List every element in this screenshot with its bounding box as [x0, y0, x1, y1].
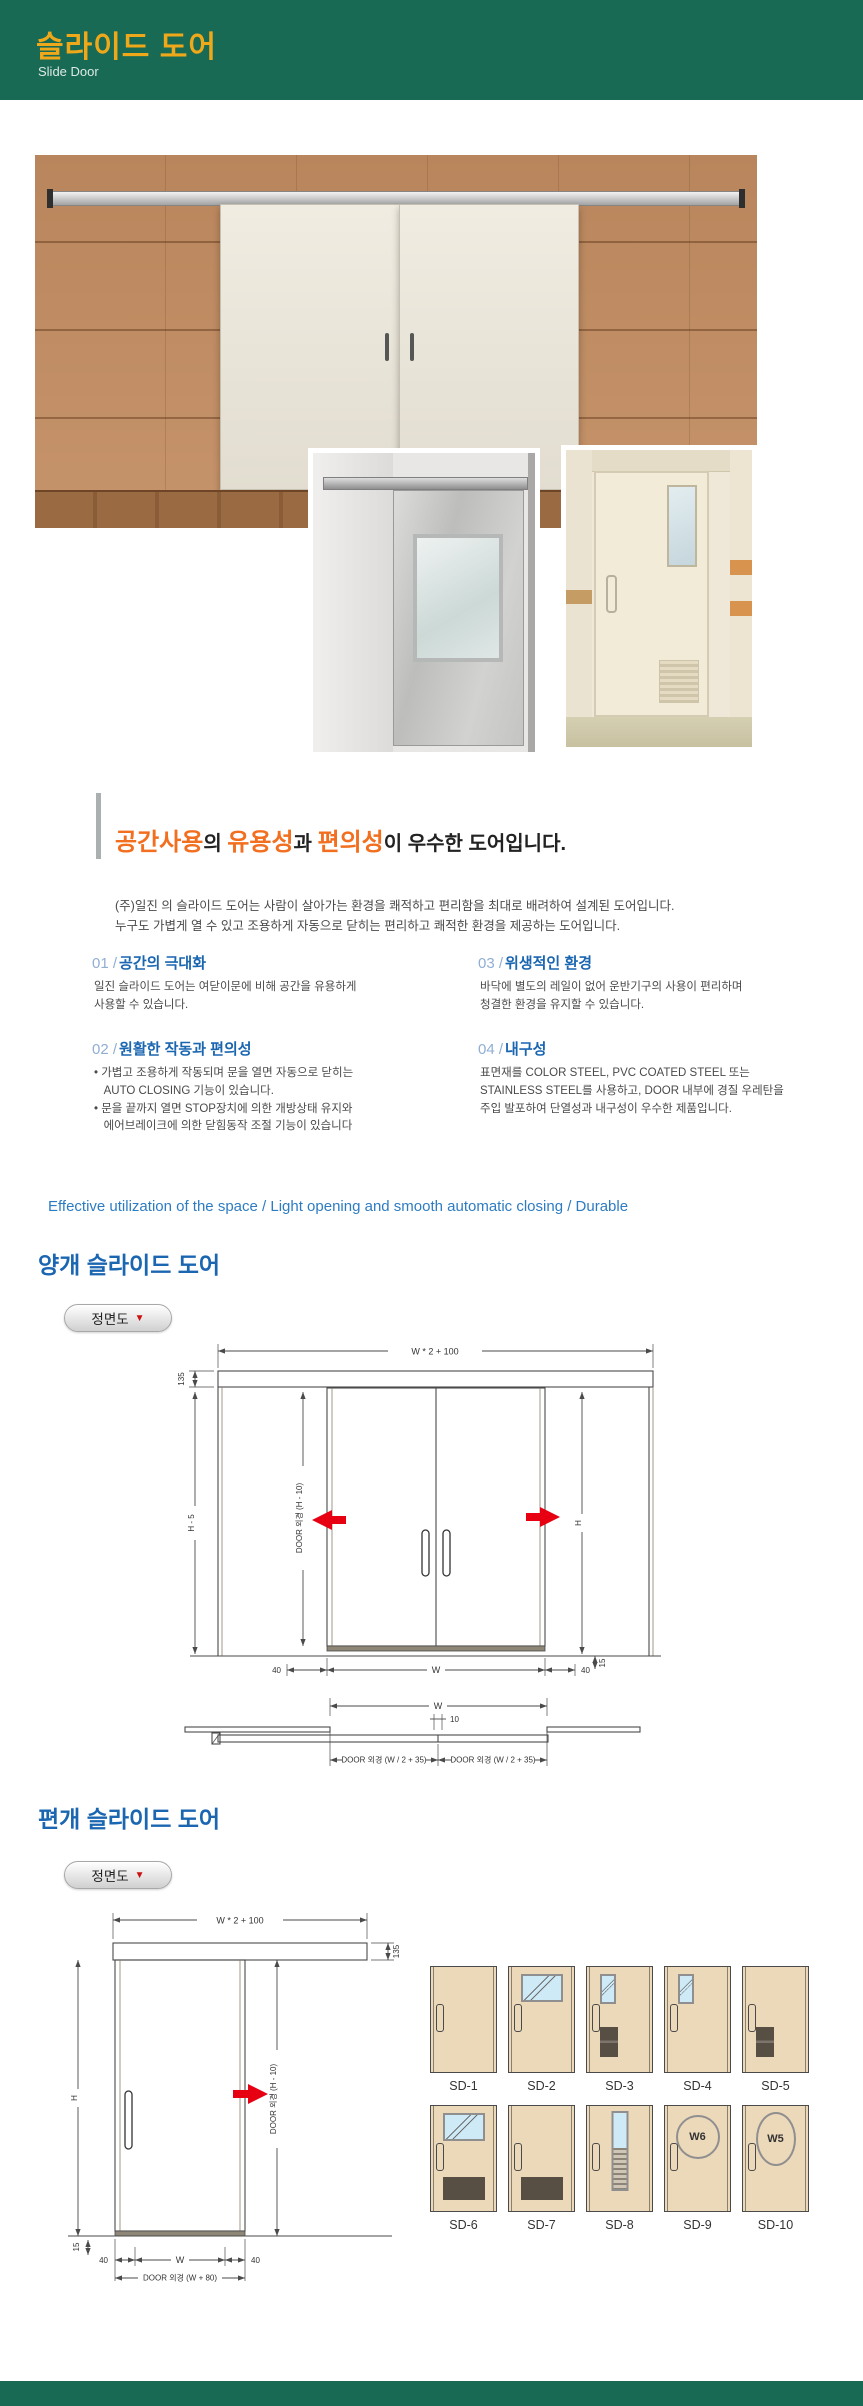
intro-heading: 공간사용의 유용성과 편의성이 우수한 도어입니다. [115, 822, 566, 857]
feature-title: 원활한 작동과 편의성 [119, 1041, 252, 1058]
door-preview-window-vent-bottom [430, 2105, 497, 2212]
page-header: 슬라이드 도어 Slide Door [0, 0, 863, 100]
door-vent [443, 2177, 485, 2200]
english-tagline: Effective utilization of the space / Lig… [48, 1198, 628, 1215]
photo-stainless-door [308, 448, 540, 757]
plan-wall-left [185, 1727, 330, 1732]
dim-total-height: H [574, 1520, 583, 1526]
feature-02: 02 /원활한 작동과 편의성 • 가볍고 조용하게 작동되며 문을 열면 자동… [92, 1038, 452, 1136]
front-view-dropdown-double[interactable]: 정면도 ▼ [64, 1304, 172, 1332]
door-vent [521, 2177, 563, 2200]
door-type-label: SD-3 [586, 2079, 653, 2093]
plan-dim-door-right: DOOR 외경 (W / 2 + 35) [450, 1755, 536, 1765]
slide-direction-arrow-right [526, 1507, 560, 1527]
door-preview-round-window: W6 [664, 2105, 731, 2212]
door-type-label: SD-2 [508, 2079, 575, 2093]
drawing-double-door-front-view: W * 2 + 100 135 H - 5 DOOR 외경 (H - 10) [105, 1338, 665, 1808]
door-type-label: SD-7 [508, 2218, 575, 2232]
door-type-row-1: SD-1 SD-2 SD-3 [430, 1966, 809, 2093]
door-type-card: SD-2 [508, 1966, 575, 2093]
door-vent [600, 2027, 618, 2057]
door-type-label: SD-10 [742, 2218, 809, 2232]
dim-floor-gap: 15 [598, 1658, 607, 1667]
heading-highlight: 공간사용 [115, 829, 203, 856]
dim-overall-width: W * 2 + 100 [216, 1916, 263, 1926]
feature-title: 공간의 극대화 [119, 955, 206, 972]
plan-dim-door-left: DOOR 외경 (W / 2 + 35) [341, 1755, 427, 1765]
dim-overall-width: W * 2 + 100 [411, 1347, 458, 1357]
photo-wood-rail [730, 560, 752, 575]
dim-overlap-left: 40 [272, 1666, 281, 1675]
feature-number: 01 / [92, 955, 117, 972]
drawing-door-handle [422, 1530, 429, 1576]
door-handle [670, 2004, 678, 2032]
door-preview-vent-bottom [508, 2105, 575, 2212]
front-view-label: 정면도 [91, 1308, 128, 1328]
drawing-door-panel [115, 1960, 245, 2231]
section-title-double: 양개 슬라이드 도어 [38, 1246, 220, 1280]
drawing-single-door-front-view: W * 2 + 100 135 H DOOR 외경 (H - 10) 15 [30, 1903, 430, 2293]
door-type-card: SD-6 [430, 2105, 497, 2232]
page-title: 슬라이드 도어 [36, 22, 217, 66]
door-window-large [443, 2113, 485, 2141]
section-title-single: 편개 슬라이드 도어 [38, 1800, 220, 1834]
photo-wall-edge [528, 453, 535, 752]
heading-highlight: 유용성 [227, 829, 293, 856]
photo-door-track [323, 477, 528, 490]
door-handle [514, 2143, 522, 2171]
dim-overlap-right: 40 [251, 2256, 260, 2265]
page-subtitle: Slide Door [38, 64, 99, 79]
photo-corridor-door [561, 445, 757, 752]
chevron-down-icon: ▼ [135, 1870, 145, 1881]
feature-body: 표면재를 COLOR STEEL, PVC COATED STEEL 또는 ST… [478, 1065, 838, 1118]
photo-right-wall [730, 450, 752, 747]
door-handle [436, 2143, 444, 2171]
slide-direction-arrow-right [233, 2084, 268, 2104]
plan-dim-opening: W [434, 1701, 443, 1711]
door-type-card: W5 SD-10 [742, 2105, 809, 2232]
dim-track-height: 135 [177, 1372, 186, 1386]
door-type-card: SD-3 [586, 1966, 653, 2093]
drawing-track [218, 1371, 653, 1387]
door-preview-plain [430, 1966, 497, 2073]
door-handle [670, 2143, 678, 2171]
dim-door-height: DOOR 외경 (H - 10) [268, 2064, 278, 2135]
door-window-large [521, 1974, 563, 2002]
door-handle [748, 2143, 756, 2171]
feature-03: 03 /위생적인 환경 바닥에 별도의 레일이 없어 운반기구의 사용이 편리하… [478, 952, 838, 1015]
door-type-row-2: SD-6 SD-7 SD-8 W6 [430, 2105, 809, 2232]
feature-body: • 가볍고 조용하게 작동되며 문을 열면 자동으로 닫히는 AUTO CLOS… [92, 1065, 452, 1136]
door-preview-window-small [664, 1966, 731, 2073]
photo-wall [313, 453, 393, 752]
photo-cream-door [594, 471, 710, 718]
catalog-page: 슬라이드 도어 Slide Door 공간사용의 유용성과 편의성이 우수 [0, 0, 863, 2406]
door-type-card: SD-7 [508, 2105, 575, 2232]
dim-floor-gap: 15 [72, 2242, 81, 2251]
dim-overlap-right: 40 [581, 1666, 590, 1675]
door-window-small [678, 1974, 694, 2004]
door-type-label: SD-1 [430, 2079, 497, 2093]
door-handle [592, 2143, 600, 2171]
feature-title: 위생적인 환경 [505, 955, 592, 972]
dim-overlap-left: 40 [99, 2256, 108, 2265]
door-round-window: W6 [676, 2115, 720, 2159]
feature-04: 04 /내구성 표면재를 COLOR STEEL, PVC COATED STE… [478, 1038, 838, 1118]
door-strip-window [611, 2111, 628, 2191]
door-preview-window-large [508, 1966, 575, 2073]
drawing-track [113, 1943, 367, 1960]
chevron-down-icon: ▼ [135, 1313, 145, 1324]
photo-frosted-window [413, 534, 503, 661]
photo-door-handle [606, 575, 617, 613]
door-type-label: SD-6 [430, 2218, 497, 2232]
photo-door-louver [659, 660, 699, 703]
door-type-label: SD-5 [742, 2079, 809, 2093]
door-handle [748, 2004, 756, 2032]
door-handle [592, 2004, 600, 2032]
door-type-label: SD-9 [664, 2218, 731, 2232]
door-type-card: SD-4 [664, 1966, 731, 2093]
photo-floor [566, 717, 752, 747]
door-type-card: SD-8 [586, 2105, 653, 2232]
drawing-door-handle [125, 2091, 132, 2149]
feature-number: 02 / [92, 1041, 117, 1058]
plan-door-panels [218, 1735, 548, 1742]
door-handle [436, 2004, 444, 2032]
door-type-card: SD-5 [742, 1966, 809, 2093]
feature-body: 일진 슬라이드 도어는 여닫이문에 비해 공간을 유용하게 사용할 수 있습니다… [92, 979, 452, 1015]
door-oval-window: W5 [756, 2112, 796, 2166]
door-window-small [600, 1974, 616, 2004]
plan-dim-gap: 10 [450, 1715, 459, 1724]
front-view-label: 정면도 [91, 1865, 128, 1885]
feature-number: 04 / [478, 1041, 503, 1058]
photo-door-handle [385, 333, 389, 361]
door-vent [756, 2027, 774, 2057]
dim-track-height: 135 [392, 1944, 401, 1958]
door-preview-oval-window: W5 [742, 2105, 809, 2212]
dim-door-width: DOOR 외경 (W + 80) [143, 2273, 217, 2283]
feature-body: 바닥에 별도의 레일이 없어 운반기구의 사용이 편리하며 청결한 환경을 유지… [478, 979, 838, 1015]
heading-highlight: 편의성 [318, 829, 384, 856]
plan-wall-right [547, 1727, 640, 1732]
door-type-label: SD-8 [586, 2218, 653, 2232]
slide-direction-arrow-left [312, 1510, 346, 1530]
door-type-grid: SD-1 SD-2 SD-3 [430, 1966, 809, 2232]
heading-accent-bar [96, 793, 101, 859]
photo-wood-rail [566, 590, 592, 605]
drawing-door-handle [443, 1530, 450, 1576]
door-type-card: W6 SD-9 [664, 2105, 731, 2232]
feature-01: 01 /공간의 극대화 일진 슬라이드 도어는 여닫이문에 비해 공간을 유용하… [92, 952, 452, 1015]
door-handle [514, 2004, 522, 2032]
dim-opening-width: W [176, 2255, 185, 2265]
photo-wood-rail [730, 601, 752, 616]
dim-door-height: DOOR 외경 (H - 10) [294, 1483, 304, 1554]
door-preview-strip-louver [586, 2105, 653, 2212]
door-preview-window-vent [586, 1966, 653, 2073]
door-type-card: SD-1 [430, 1966, 497, 2093]
photo-door-window [667, 485, 698, 567]
intro-paragraph: (주)일진 의 슬라이드 도어는 사람이 살아가는 환경을 쾌적하고 편리함을 … [115, 896, 674, 936]
dim-total-height: H [70, 2095, 79, 2101]
feature-number: 03 / [478, 955, 503, 972]
photo-door-handle [410, 333, 414, 361]
feature-title: 내구성 [505, 1041, 546, 1058]
photo-header-beam [566, 450, 752, 472]
door-preview-vent [742, 1966, 809, 2073]
front-view-dropdown-single[interactable]: 정면도 ▼ [64, 1861, 172, 1889]
photo-stainless-panel [393, 490, 524, 746]
page-footer-bar [0, 2381, 863, 2406]
dim-opening-width: W [432, 1665, 441, 1675]
dim-opening-height: H - 5 [187, 1514, 196, 1532]
door-type-label: SD-4 [664, 2079, 731, 2093]
